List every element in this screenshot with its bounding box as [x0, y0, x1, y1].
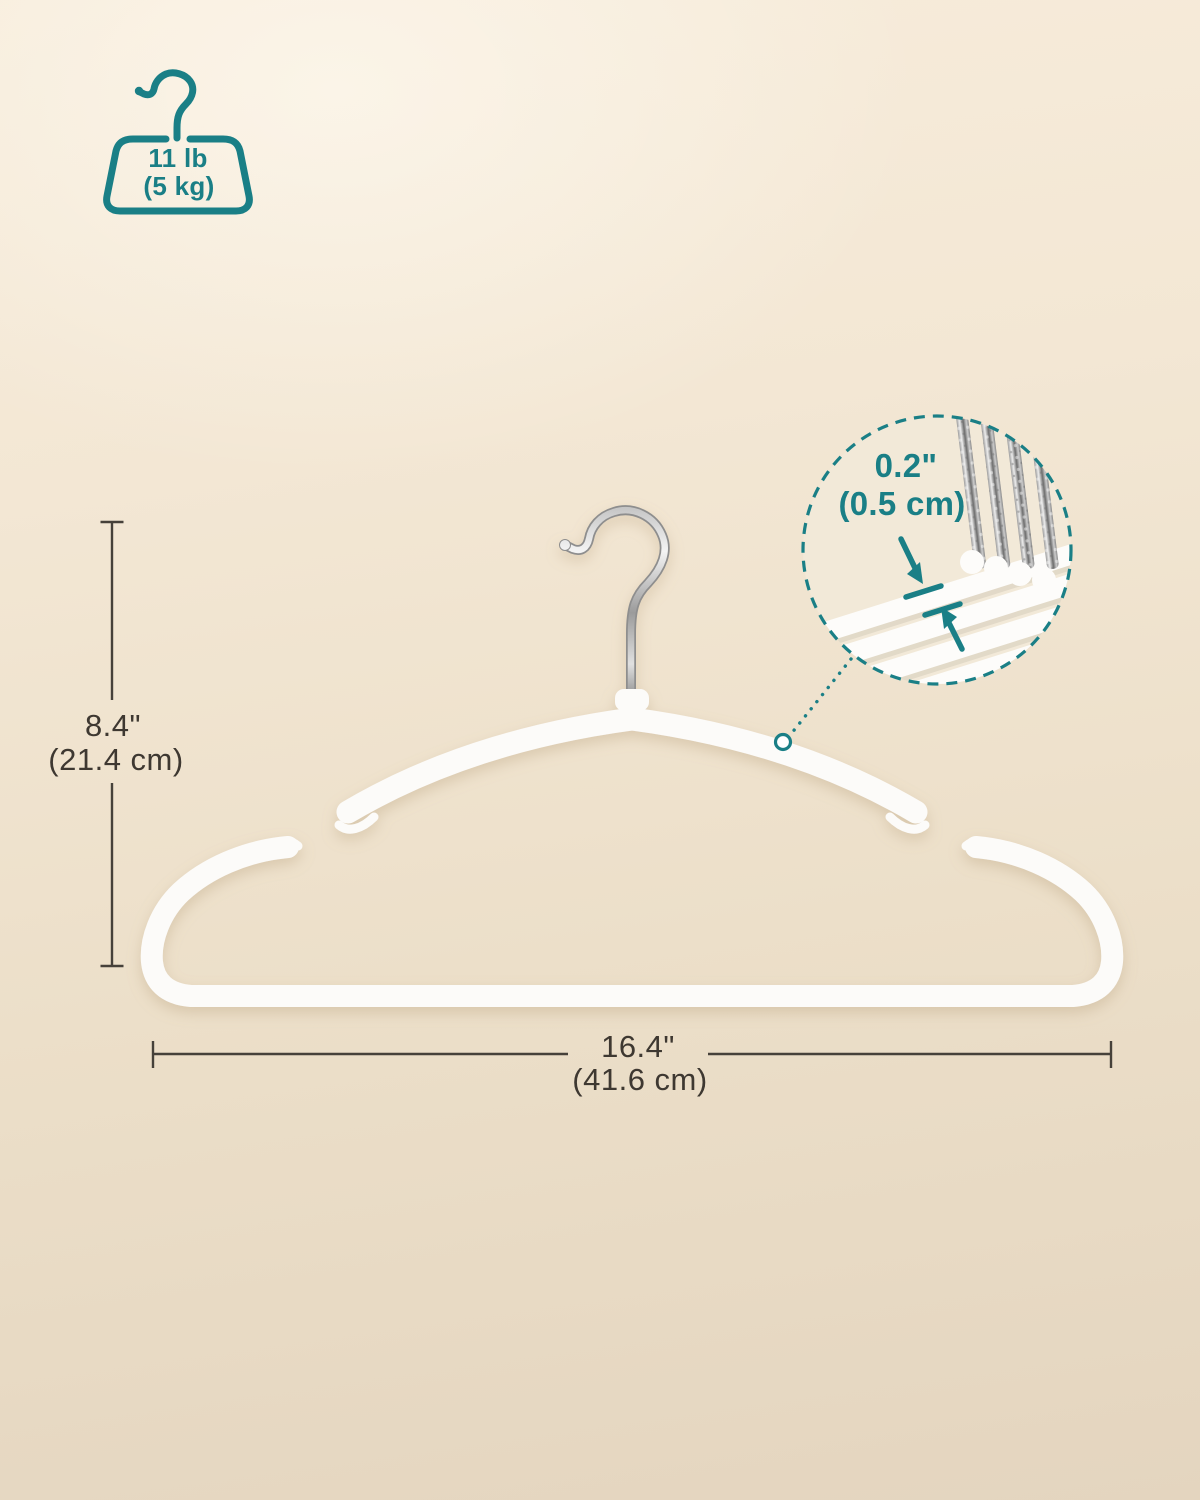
height-imperial: 8.4"	[85, 708, 141, 744]
weight-capacity-imperial: 11 lb	[148, 143, 207, 174]
leader-dotted-line	[791, 659, 851, 734]
hanger-arm-left	[348, 719, 632, 812]
swivel-hook-icon	[560, 510, 665, 700]
height-metric: (21.4 cm)	[48, 742, 183, 778]
thickness-metric: (0.5 cm)	[838, 485, 965, 523]
product-infographic: 11 lb (5 kg) 0.2" (0.5 cm) 8.4" (21.4 cm…	[0, 0, 1200, 1500]
magnifier-detail-circle	[688, 386, 1200, 796]
hanger-bottom-bar	[152, 847, 1113, 996]
hook-collar	[615, 689, 649, 711]
weight-capacity-metric: (5 kg)	[143, 171, 214, 202]
width-imperial: 16.4"	[601, 1029, 675, 1065]
leader-ring-marker	[776, 735, 791, 750]
hanger-arm-right	[632, 719, 916, 812]
width-metric: (41.6 cm)	[572, 1062, 707, 1098]
hanger-body	[152, 719, 1113, 996]
thickness-imperial: 0.2"	[875, 447, 938, 485]
